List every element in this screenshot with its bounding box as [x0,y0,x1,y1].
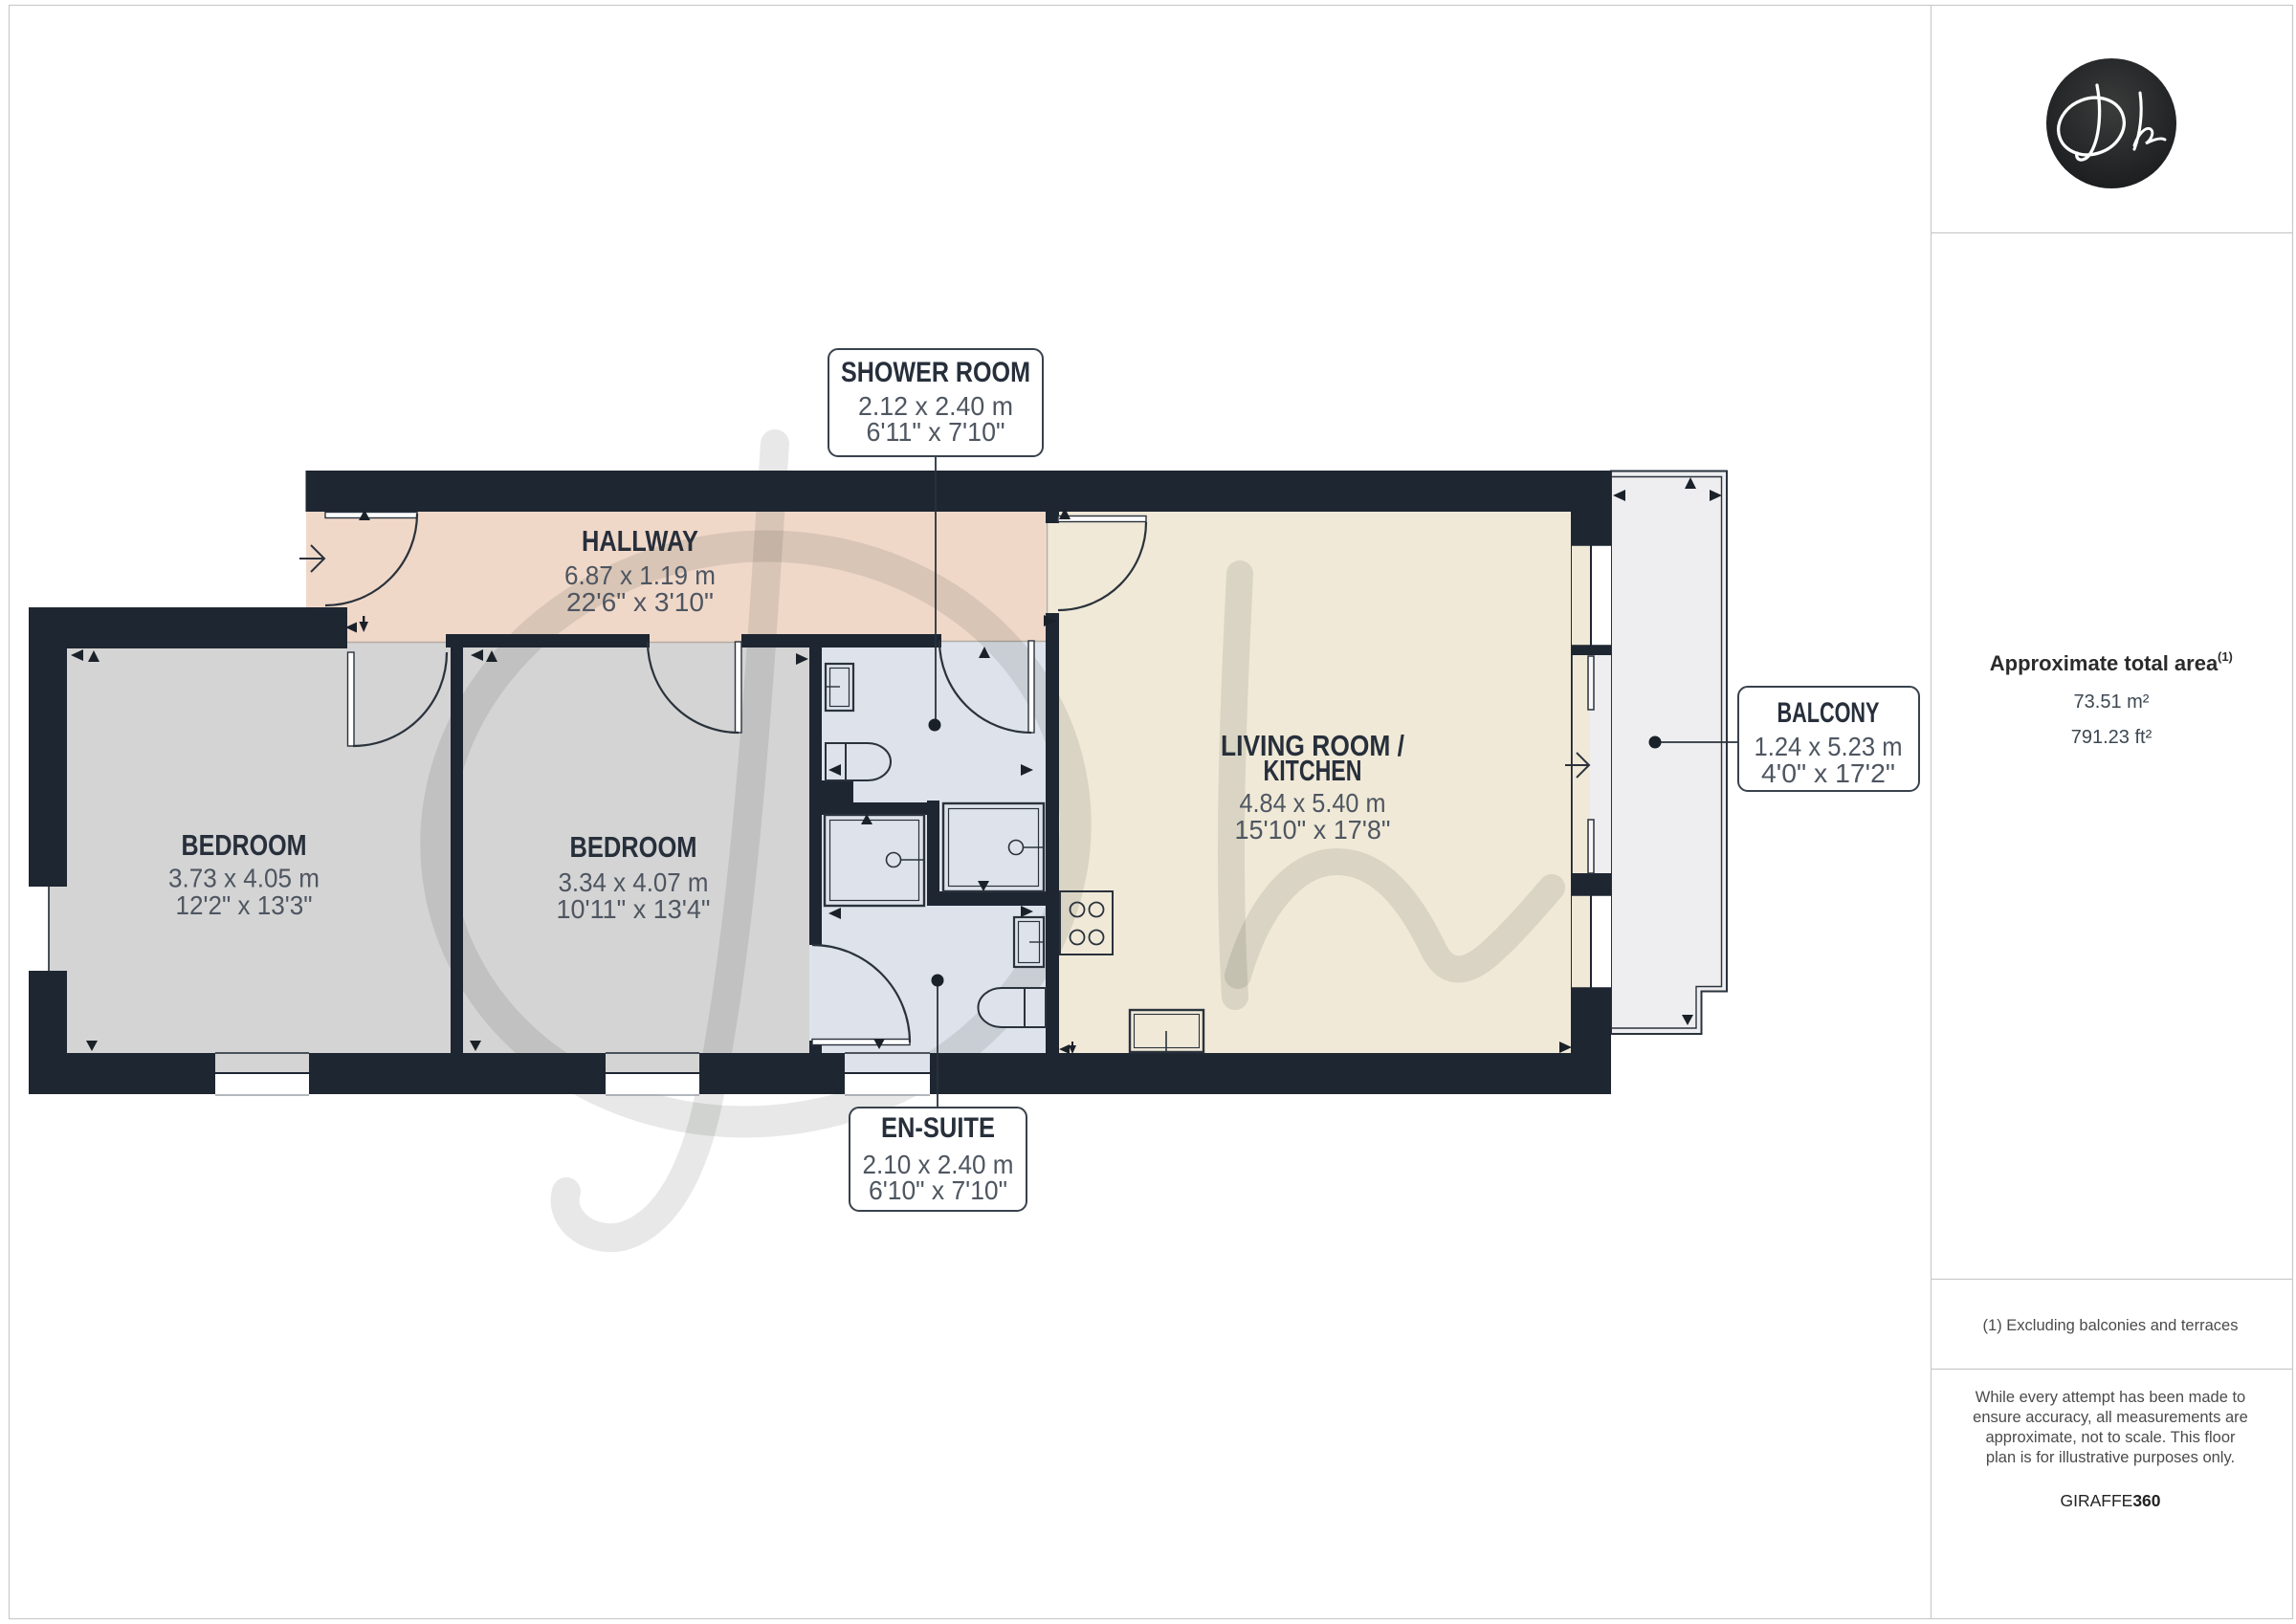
svg-text:4'0" x 17'2": 4'0" x 17'2" [1761,758,1895,788]
svg-text:ensure accuracy, all measureme: ensure accuracy, all measurements are [1973,1409,2248,1426]
svg-text:KITCHEN: KITCHEN [1264,754,1362,787]
svg-text:4.84 x 5.40 m: 4.84 x 5.40 m [1240,788,1386,818]
svg-text:EN-SUITE: EN-SUITE [881,1112,995,1144]
svg-text:22'6" x 3'10": 22'6" x 3'10" [566,587,714,617]
svg-text:73.51 m²: 73.51 m² [2074,691,2150,713]
svg-text:10'11" x 13'4": 10'11" x 13'4" [557,894,711,924]
svg-text:6'11" x 7'10": 6'11" x 7'10" [867,417,1005,447]
svg-text:6'10" x 7'10": 6'10" x 7'10" [869,1175,1007,1205]
svg-text:SHOWER ROOM: SHOWER ROOM [841,357,1030,388]
svg-text:Approximate total area: Approximate total area [1990,651,2219,675]
svg-text:791.23 ft²: 791.23 ft² [2071,727,2152,748]
svg-text:12'2" x 13'3": 12'2" x 13'3" [176,890,313,920]
svg-text:6.87 x 1.19 m: 6.87 x 1.19 m [564,560,716,590]
svg-text:BALCONY: BALCONY [1777,697,1880,729]
svg-text:HALLWAY: HALLWAY [582,524,698,558]
svg-text:BEDROOM: BEDROOM [182,828,307,862]
svg-text:approximate, not to scale. Thi: approximate, not to scale. This floor [1985,1429,2236,1446]
svg-text:3.73 x 4.05 m: 3.73 x 4.05 m [168,864,320,893]
svg-text:(1) Excluding balconies and te: (1) Excluding balconies and terraces [1983,1317,2239,1334]
svg-text:While every attempt has been m: While every attempt has been made to [1976,1389,2245,1406]
svg-text:BEDROOM: BEDROOM [570,830,697,864]
svg-text:(1): (1) [2218,649,2233,664]
svg-text:plan is for illustrative purpo: plan is for illustrative purposes only. [1986,1449,2235,1466]
svg-text:3.34 x 4.07 m: 3.34 x 4.07 m [559,867,709,897]
svg-text:GIRAFFE360: GIRAFFE360 [2060,1491,2160,1510]
svg-text:15'10" x 17'8": 15'10" x 17'8" [1235,815,1391,845]
svg-text:1.24 x 5.23 m: 1.24 x 5.23 m [1755,732,1903,761]
